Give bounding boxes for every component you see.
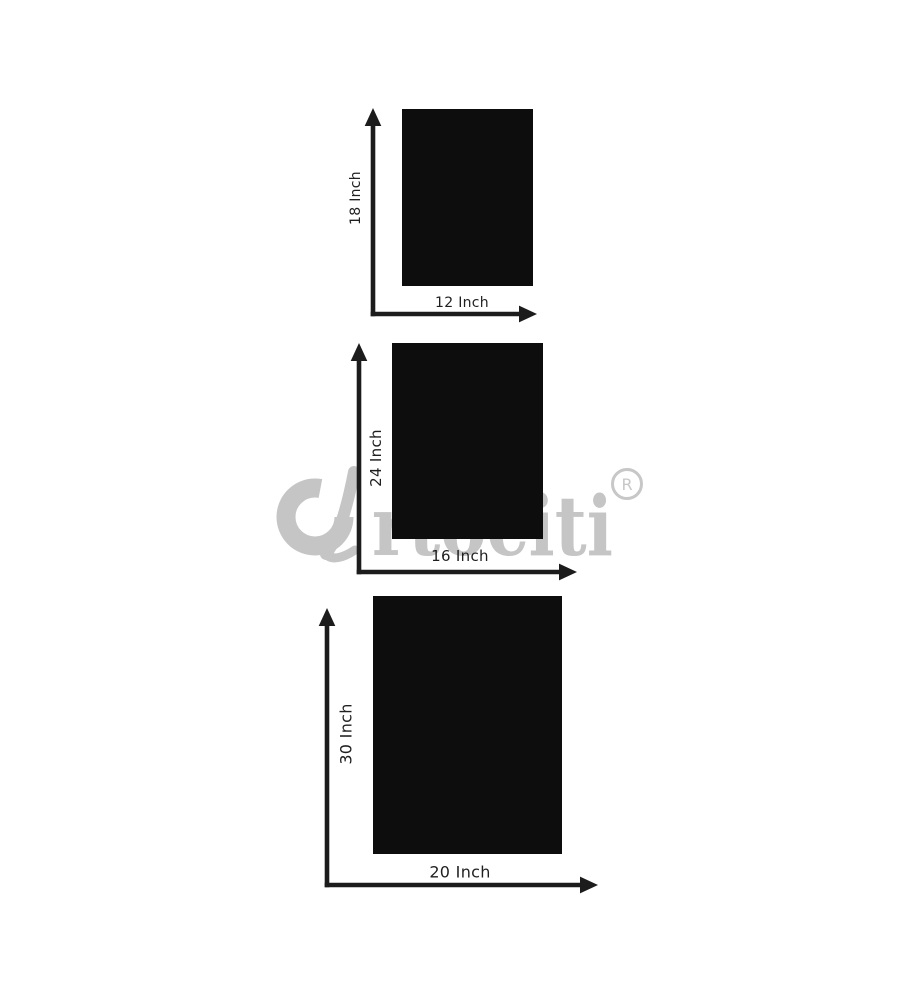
arrow-up-icon [319,608,336,626]
frame-rect-30x20 [373,596,562,854]
frame-rect-18x12 [402,109,533,286]
arrow-right-icon [580,877,598,894]
registered-trademark-icon: R [613,470,642,499]
size-figure-24x16: 24 Inch 16 Inch [325,330,585,584]
height-label: 18 Inch [348,171,364,225]
frame-rect-24x16 [392,343,543,539]
arrow-right-icon [519,306,537,323]
size-figure-30x20: 30 Inch 20 Inch [295,590,605,898]
product-size-diagram: rtociti R 18 Inch 12 Inch 24 Inch 16 Inc… [0,0,909,1000]
arrow-up-icon [365,108,382,126]
svg-text:R: R [621,475,632,494]
arrow-right-icon [559,564,577,581]
height-label: 24 Inch [367,429,385,487]
arrow-up-icon [351,343,368,361]
width-label: 20 Inch [429,863,490,882]
height-label: 30 Inch [337,703,356,764]
width-label: 16 Inch [431,547,489,565]
width-label: 12 Inch [435,295,489,311]
size-figure-18x12: 18 Inch 12 Inch [340,95,550,327]
